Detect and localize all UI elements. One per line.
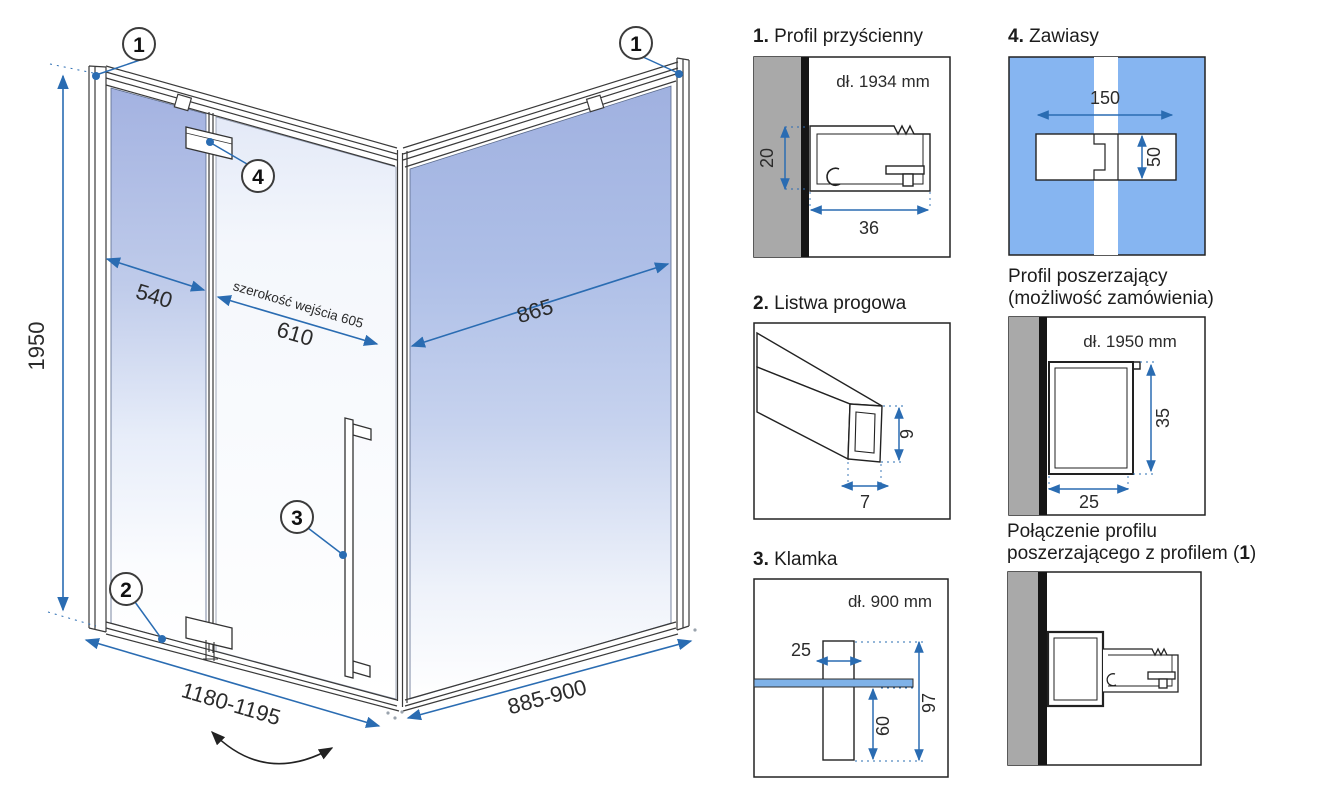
panel-wall-profile: 1. Profil przyścienny dł. 1934 mm 20 36: [753, 26, 951, 263]
main-enclosure-drawing: 1 1 4 3 2 1950 540 szerokość wejścia 605…: [0, 0, 730, 800]
extension-cross-section: [1049, 362, 1140, 474]
side-glass-panel: [410, 86, 671, 699]
panel-handle: 3. Klamka dł. 900 mm 25 60 97: [753, 549, 949, 783]
profile-height-label: 20: [757, 148, 777, 168]
panel-threshold-drawing: 9 7: [753, 322, 951, 520]
connection-wall-profile: [1103, 649, 1178, 692]
callout-1-right: 1: [630, 33, 642, 56]
wall-line: [1039, 317, 1047, 515]
panel-extension-title: Profil poszerzający (możliwość zamówieni…: [1008, 266, 1214, 310]
panel-hinges-drawing: 150 50: [1008, 56, 1206, 256]
fixed-glass-panel: [111, 88, 206, 649]
panel-wall-profile-title: 1. Profil przyścienny: [753, 26, 951, 48]
extension-height-label: 35: [1153, 408, 1173, 428]
panel-connection-title: Połączenie profilu poszerzającego z prof…: [1007, 521, 1256, 565]
threshold-height-label: 9: [897, 429, 917, 439]
panel-wall-profile-drawing: dł. 1934 mm 20 36: [753, 56, 951, 258]
door-swing-arrow-icon: [212, 732, 332, 764]
glass-strip: [754, 679, 913, 687]
wall-hatch: [1009, 317, 1039, 515]
callout-3: 3: [291, 507, 303, 530]
wall-line: [1038, 572, 1047, 765]
panel-connection-drawing: [1007, 571, 1202, 766]
handle-length-label: dł. 900 mm: [848, 592, 932, 611]
extension-width-label: 25: [1079, 492, 1099, 512]
handle-total-label: 97: [919, 693, 939, 713]
wall-line: [801, 57, 809, 257]
threshold-width-label: 7: [860, 492, 870, 512]
wall-hatch: [1008, 572, 1038, 765]
hinge-height-label: 50: [1144, 147, 1164, 167]
panel-handle-drawing: dł. 900 mm 25 60 97: [753, 578, 949, 778]
handle-inner-label: 60: [873, 716, 893, 736]
profile-cross-section: [810, 126, 930, 191]
panel-hinges: 4. Zawiasy 150 50: [1008, 26, 1206, 261]
panel-threshold-title: 2. Listwa progowa: [753, 293, 951, 315]
callout-2: 2: [120, 579, 132, 602]
panel-hinges-title: 4. Zawiasy: [1008, 26, 1206, 48]
dim-height-label: 1950: [24, 322, 49, 371]
handle-section: [823, 641, 854, 760]
profile-length-label: dł. 1934 mm: [836, 72, 930, 91]
connection-extension-profile: [1048, 632, 1103, 706]
profile-width-label: 36: [859, 218, 879, 238]
shower-enclosure-spec-diagram: 1 1 4 3 2 1950 540 szerokość wejścia 605…: [0, 0, 1327, 800]
hinge-width-label: 150: [1090, 88, 1120, 108]
panel-connection: Połączenie profilu poszerzającego z prof…: [1007, 521, 1256, 771]
panel-extension-drawing: dł. 1950 mm 35 25: [1008, 316, 1206, 516]
panel-extension-profile: Profil poszerzający (możliwość zamówieni…: [1008, 266, 1214, 521]
handle-width-label: 25: [791, 640, 811, 660]
callout-1-left: 1: [133, 34, 145, 57]
dim-front-width-label: 1180-1195: [179, 677, 284, 730]
callout-4: 4: [252, 166, 264, 189]
door-glass-panel: [216, 117, 396, 699]
extension-length-label: dł. 1950 mm: [1083, 332, 1177, 351]
panel-handle-title: 3. Klamka: [753, 549, 949, 571]
panel-threshold: 2. Listwa progowa 9 7: [753, 293, 951, 525]
